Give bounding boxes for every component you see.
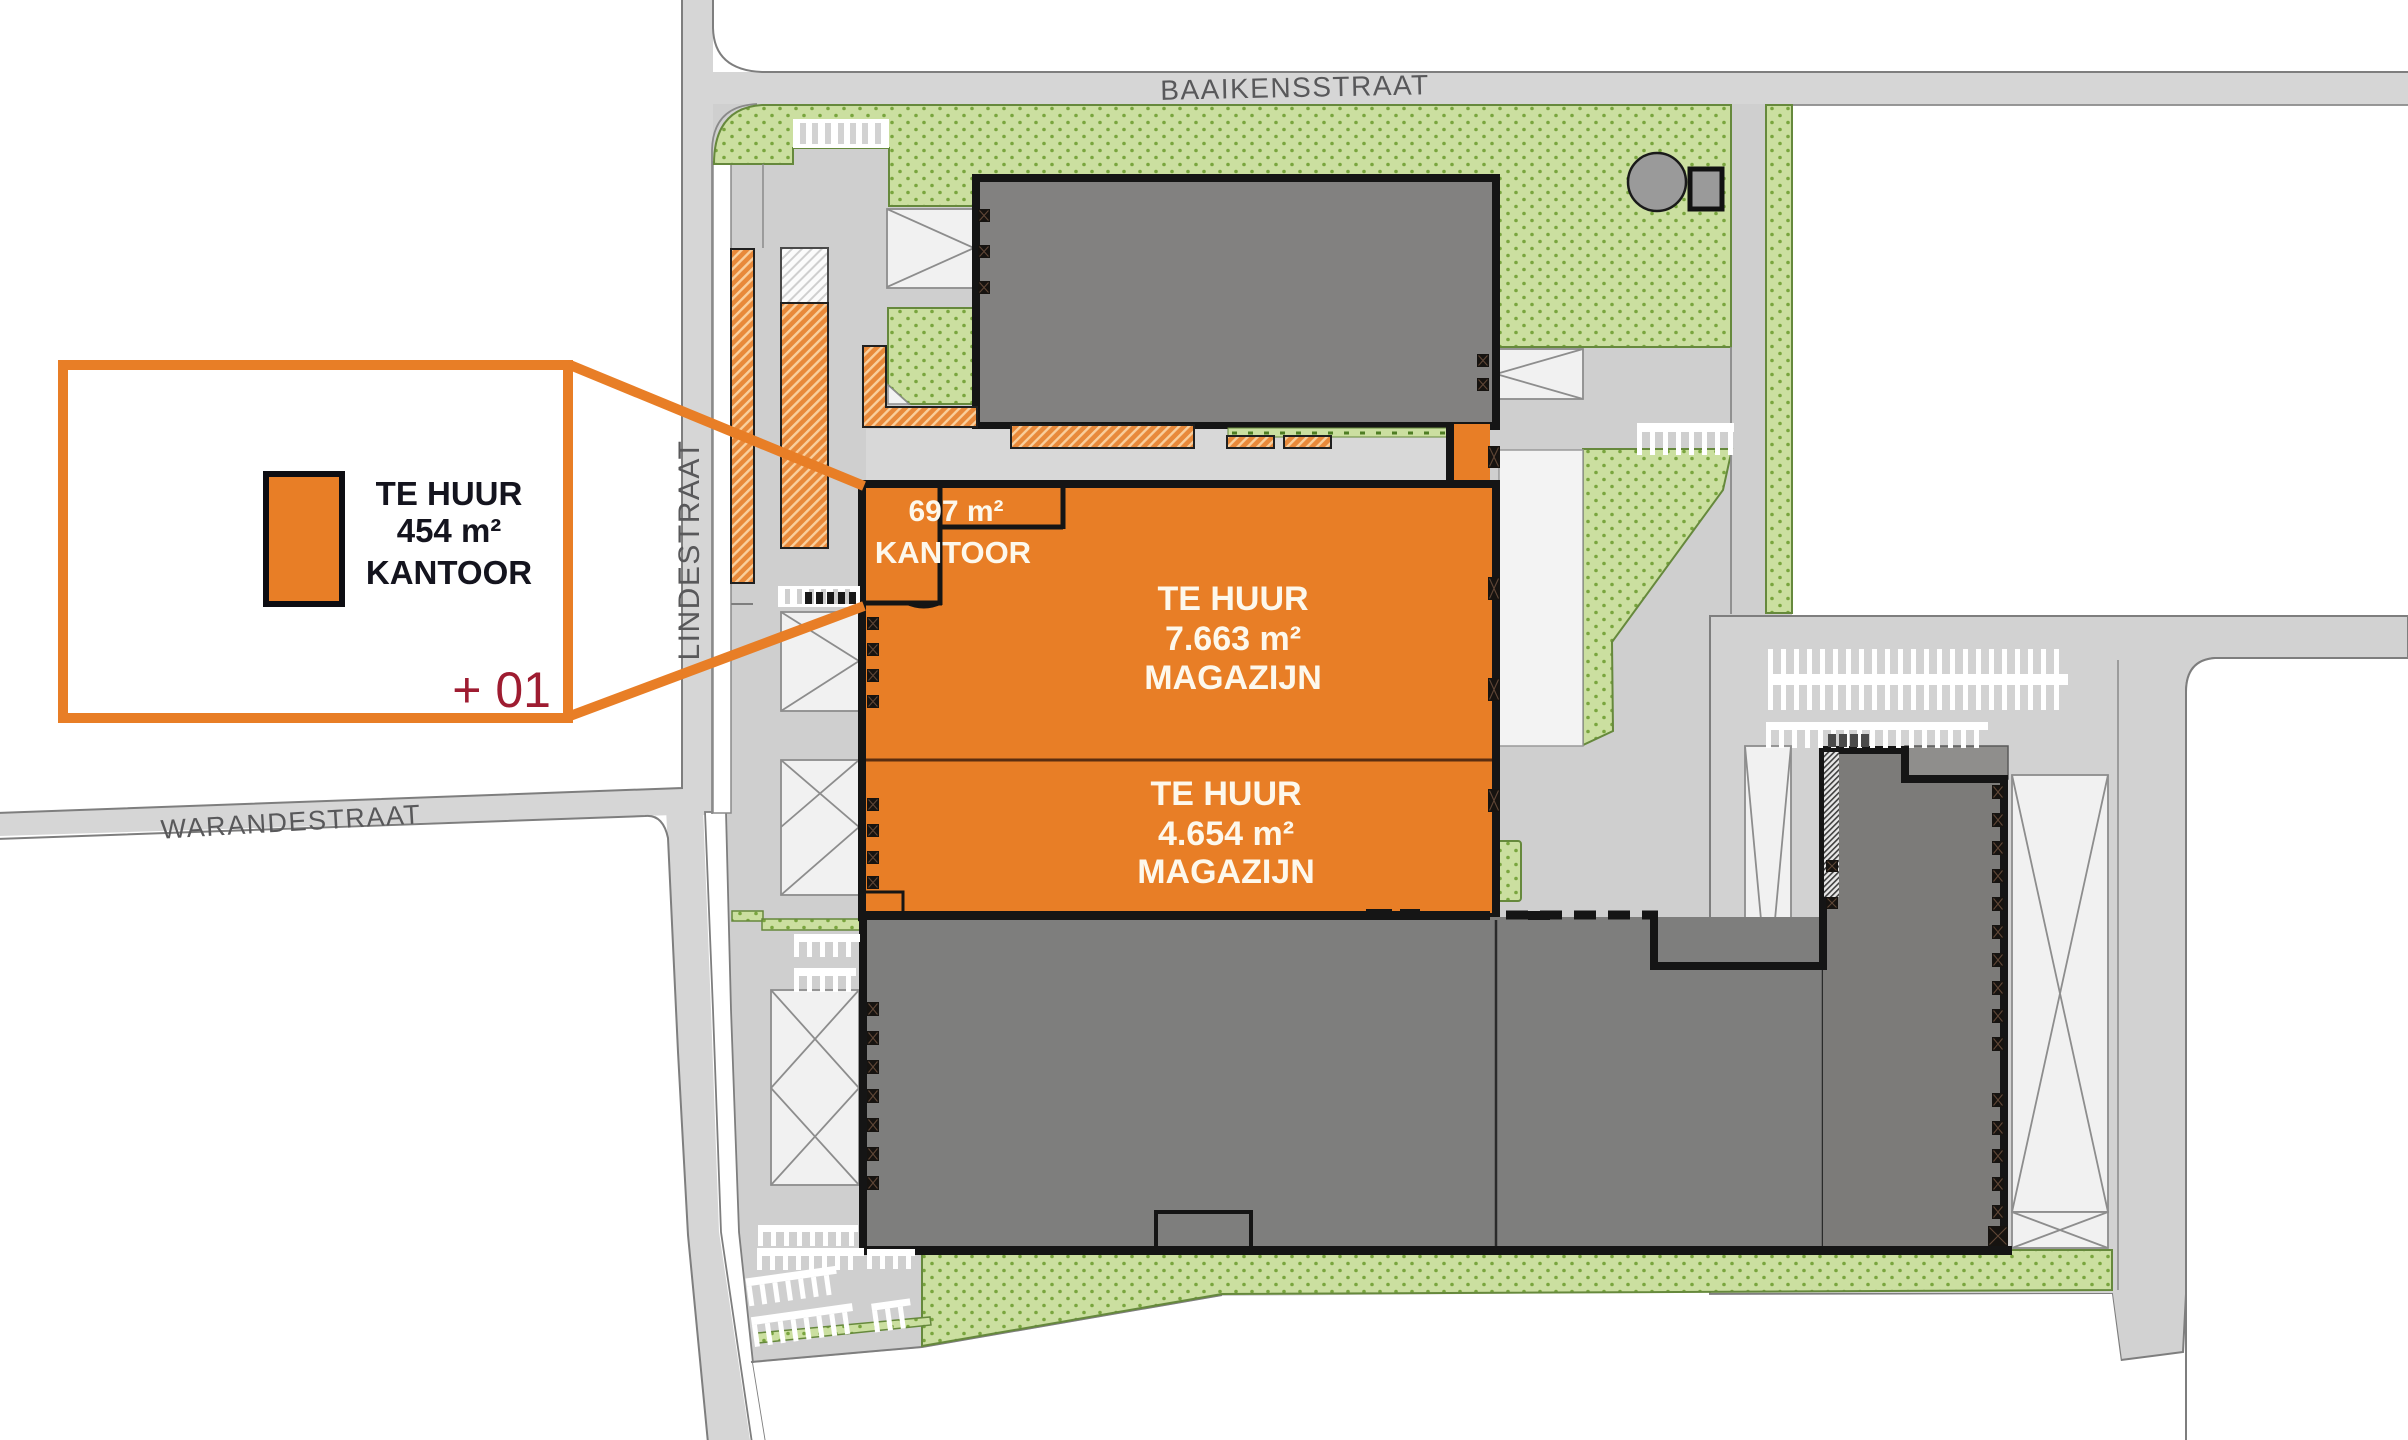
svg-text:4.654 m²: 4.654 m² (1158, 815, 1294, 853)
svg-text:BAAIKENSSTRAAT: BAAIKENSSTRAAT (1160, 69, 1430, 106)
svg-text:+ 01: + 01 (452, 662, 551, 718)
svg-text:TE HUUR: TE HUUR (1150, 775, 1301, 813)
svg-text:KANTOOR: KANTOOR (875, 535, 1031, 570)
svg-text:697 m²: 697 m² (908, 495, 1003, 528)
svg-text:454 m²: 454 m² (397, 512, 502, 549)
svg-text:7.663 m²: 7.663 m² (1165, 620, 1301, 658)
svg-text:TE HUUR: TE HUUR (1157, 580, 1308, 618)
svg-text:KANTOOR: KANTOOR (366, 554, 532, 591)
svg-text:MAGAZIJN: MAGAZIJN (1137, 853, 1315, 891)
svg-text:TE HUUR: TE HUUR (376, 475, 523, 512)
svg-text:MAGAZIJN: MAGAZIJN (1144, 659, 1322, 697)
svg-text:LINDESTRAAT: LINDESTRAAT (673, 440, 706, 661)
